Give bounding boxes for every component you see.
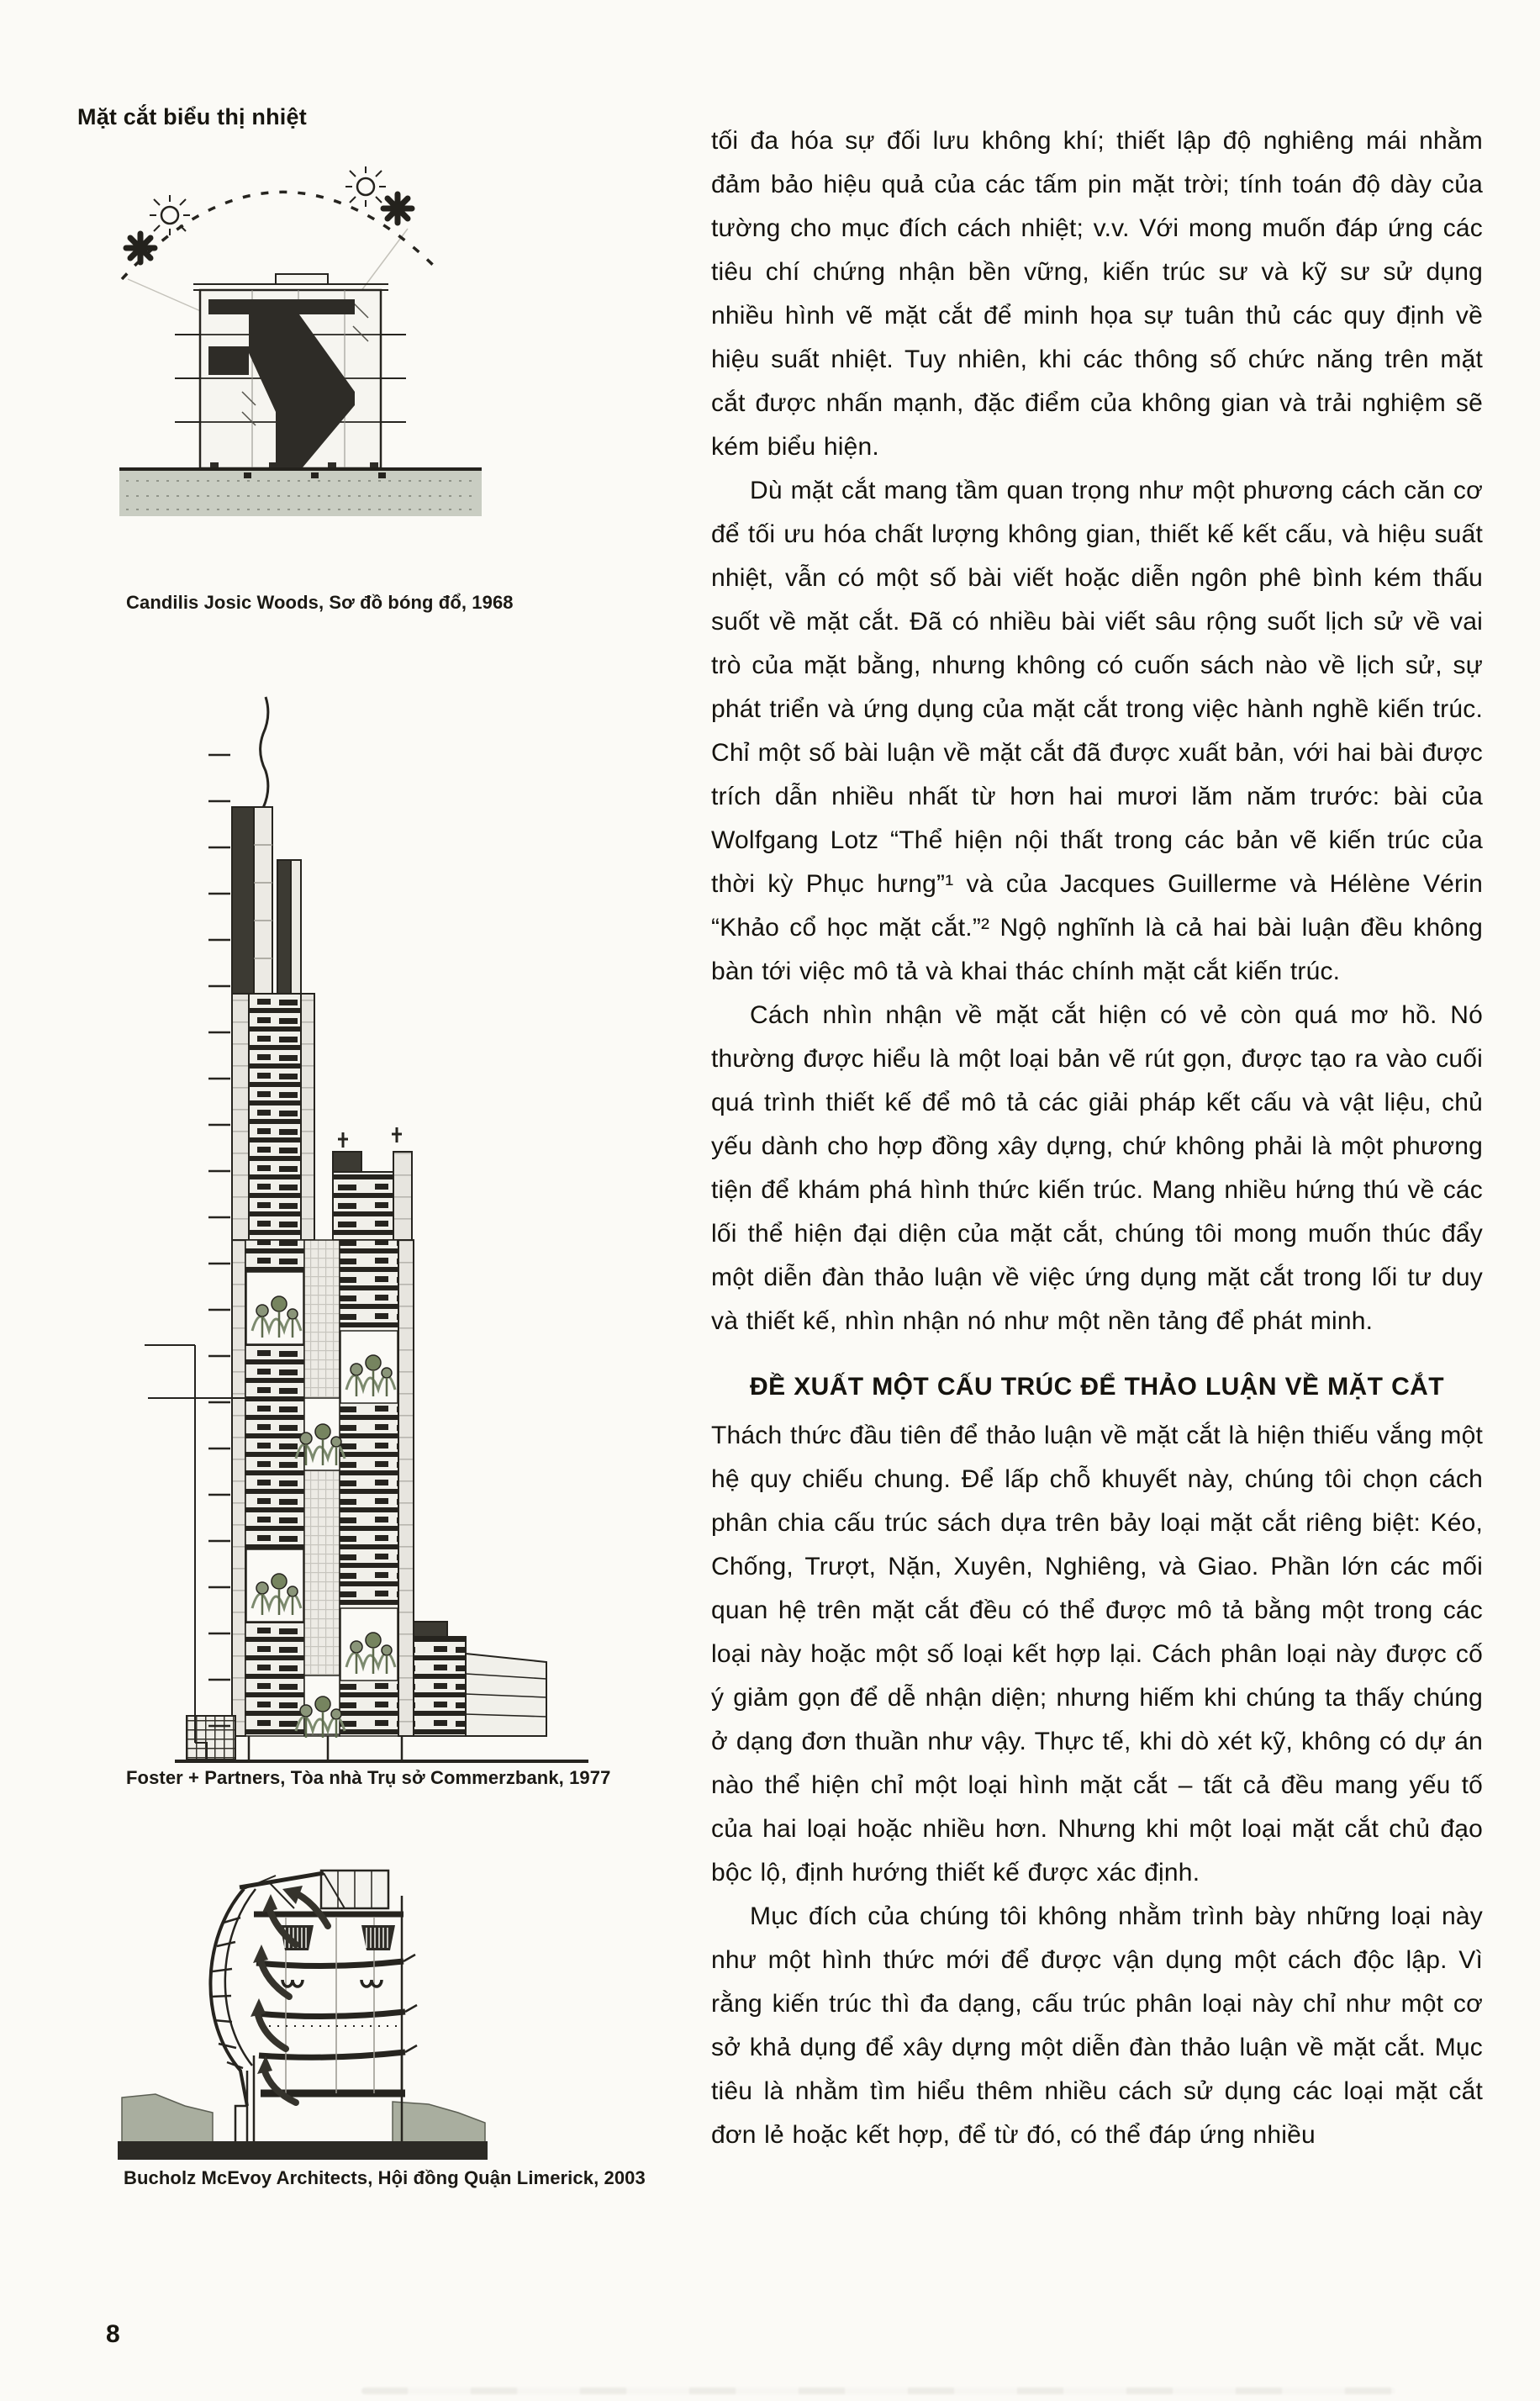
- star-burst-icon: [383, 194, 412, 223]
- shadow-diagram-drawing: [76, 135, 664, 656]
- mid-tier: [232, 994, 314, 1240]
- figure-caption: Foster + Partners, Tòa nhà Trụ sở Commer…: [126, 1767, 610, 1789]
- ground-bar: [118, 2141, 488, 2160]
- projection-line: [145, 1345, 245, 1761]
- ground: [119, 469, 482, 516]
- floor-slab: [256, 2012, 405, 2017]
- building-section: [175, 274, 406, 469]
- body-paragraph: Dù mặt cắt mang tầm quan trọng như một p…: [711, 469, 1483, 994]
- body-paragraph: Mục đích của chúng tôi không nhằm trình …: [711, 1895, 1483, 2157]
- level-ticks: [208, 755, 230, 1726]
- airflow-arrows: [251, 1886, 328, 2103]
- tower-section-drawing: [76, 694, 664, 1770]
- right-annex-tower: [333, 1127, 412, 1240]
- body-paragraph: tối đa hóa sự đối lưu không khí; thiết l…: [711, 119, 1483, 469]
- figure-caption: Candilis Josic Woods, Sơ đồ bóng đổ, 196…: [126, 592, 514, 614]
- body-text-column: tối đa hóa sự đối lưu không khí; thiết l…: [711, 119, 1483, 2157]
- right-podium: [414, 1622, 546, 1736]
- body-paragraph: Cách nhìn nhận về mặt cắt hiện có vẻ còn…: [711, 994, 1483, 1343]
- upper-masts: [232, 807, 301, 994]
- sun-icon: [150, 195, 190, 235]
- figure-tower-section: [76, 694, 664, 1770]
- body-paragraph: Thách thức đầu tiên để thảo luận về mặt …: [711, 1414, 1483, 1895]
- limerick-section-drawing: [76, 1845, 664, 2173]
- terrain: [118, 2094, 488, 2160]
- figure-shadow-diagram: [76, 135, 664, 656]
- scan-artifact: [361, 2388, 1395, 2394]
- ventilation-fins: [280, 1925, 395, 1987]
- floor-slab: [256, 1961, 403, 1966]
- figure-limerick-section: [76, 1845, 664, 2173]
- floor-slab: [259, 2052, 405, 2057]
- section-heading: ĐỀ XUẤT MỘT CẤU TRÚC ĐỂ THẢO LUẬN VỀ MẶT…: [711, 1365, 1483, 1409]
- figure-caption: Bucholz McEvoy Architects, Hội đồng Quận…: [124, 2167, 646, 2189]
- fan-glyph: [282, 1980, 382, 1987]
- curved-facade: [210, 1889, 256, 2141]
- star-burst-icon: [126, 234, 155, 262]
- figure-column-heading: Mặt cắt biểu thị nhiệt: [77, 104, 307, 130]
- sun-icon: [345, 166, 386, 207]
- page-number: 8: [106, 2320, 120, 2349]
